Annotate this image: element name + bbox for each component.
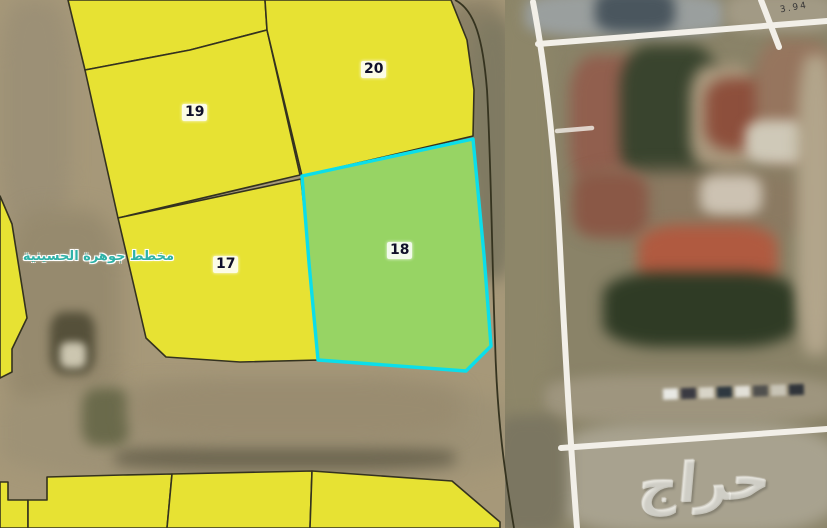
car xyxy=(663,388,678,400)
map-image: 19 20 17 18 مخطط جوهرة الحسينية 3.94 حرا… xyxy=(0,0,827,528)
car xyxy=(735,386,750,398)
car xyxy=(771,385,786,397)
road-shade xyxy=(0,0,70,230)
satellite-ground xyxy=(797,55,827,355)
plan-name-label: مخطط جوهرة الحسينية xyxy=(2,249,174,264)
satellite-road xyxy=(505,0,553,430)
parcel-18-label: 18 xyxy=(387,242,412,259)
car xyxy=(717,386,732,398)
satellite-building xyxy=(700,175,762,215)
parcel-19-label: 19 xyxy=(182,104,207,121)
tree-highlight xyxy=(60,342,86,368)
car xyxy=(789,384,804,396)
haraj-watermark: حراج xyxy=(583,446,827,519)
satellite-building xyxy=(573,172,648,237)
satellite-building xyxy=(595,0,675,32)
parcel-17-label: 17 xyxy=(213,256,238,273)
car xyxy=(681,388,696,400)
satellite-trees xyxy=(603,272,798,347)
car xyxy=(753,385,768,397)
parcel-20-label: 20 xyxy=(361,61,386,78)
road-shadow-band xyxy=(115,446,455,470)
car xyxy=(699,387,714,399)
road-shade xyxy=(470,20,510,280)
satellite-ground xyxy=(725,0,827,32)
parcel-map-ground xyxy=(0,0,510,528)
bush xyxy=(82,388,130,446)
road-texture xyxy=(130,380,460,440)
satellite-ground xyxy=(505,415,568,528)
